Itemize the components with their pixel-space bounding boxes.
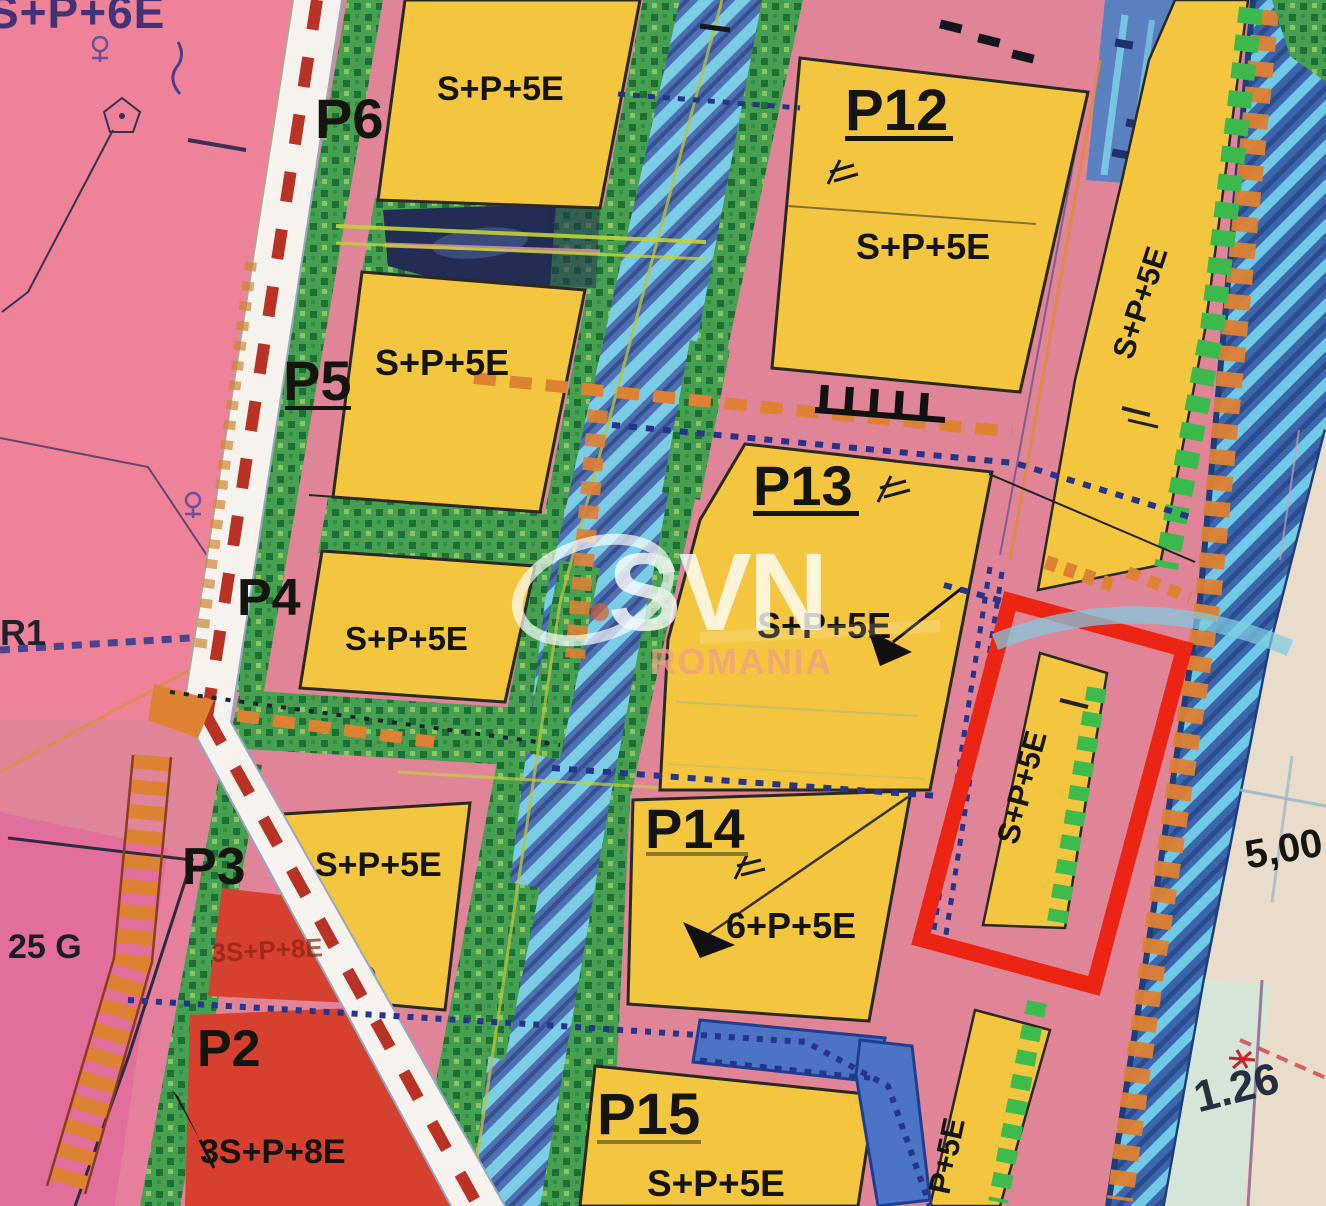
svg-text:S+P+5E: S+P+5E — [856, 226, 990, 267]
svg-text:SVN: SVN — [608, 531, 825, 654]
svg-text:25 G: 25 G — [8, 928, 82, 966]
svg-text:6+P+5E: 6+P+5E — [726, 905, 856, 946]
svg-text:P13: P13 — [753, 454, 853, 517]
svg-text:R1: R1 — [0, 612, 46, 653]
svg-text:P6: P6 — [315, 87, 384, 150]
svg-text:S+P+6E: S+P+6E — [0, 0, 165, 38]
svg-text:P4: P4 — [237, 569, 301, 627]
svg-text:3S+P+8E: 3S+P+8E — [211, 932, 324, 968]
svg-text:3S+P+8E: 3S+P+8E — [200, 1133, 346, 1171]
svg-text:S+P+5E: S+P+5E — [345, 620, 468, 657]
svg-text:P2: P2 — [197, 1020, 261, 1078]
svg-text:P14: P14 — [645, 797, 745, 860]
svg-text:P12: P12 — [845, 78, 948, 143]
svg-text:S+P+5E: S+P+5E — [437, 70, 564, 108]
svg-text:ROMANIA: ROMANIA — [650, 641, 832, 682]
svg-text:S+P+5E: S+P+5E — [647, 1163, 785, 1204]
svg-text:P3: P3 — [182, 838, 246, 896]
svg-text:S+P+5E: S+P+5E — [315, 846, 442, 884]
svg-text:P5: P5 — [283, 349, 352, 412]
svg-text:S+P+5E: S+P+5E — [375, 342, 509, 383]
svg-text:P15: P15 — [597, 1082, 700, 1147]
